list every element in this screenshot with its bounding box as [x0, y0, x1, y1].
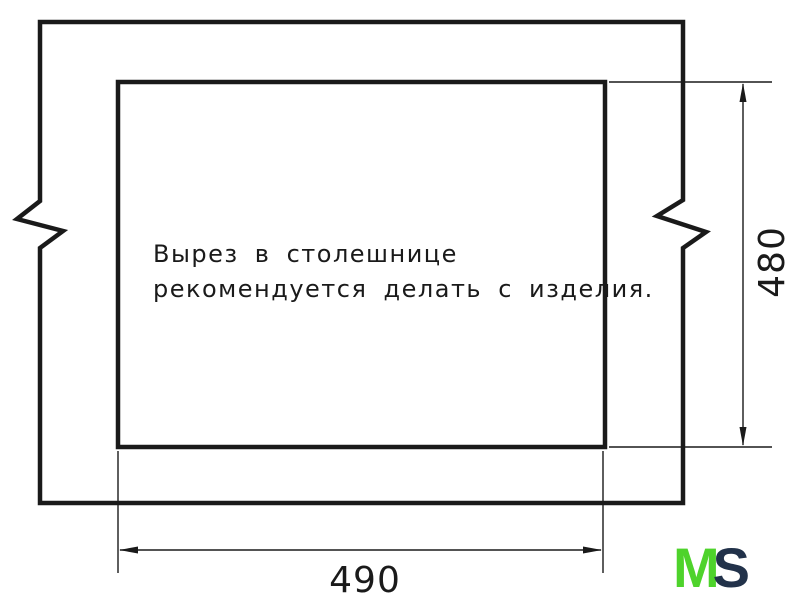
note-line-2: рекомендуется делать с изделия.	[153, 275, 654, 303]
height-arrow-bottom-icon	[740, 427, 747, 446]
drawing-canvas: Вырез в столешнице рекомендуется делать …	[0, 0, 805, 611]
height-dimension-label: 480	[752, 226, 793, 298]
ms-logo: MS	[673, 540, 750, 596]
note-line-1: Вырез в столешнице	[153, 240, 458, 268]
height-arrow-top-icon	[740, 83, 747, 102]
technical-drawing: Вырез в столешнице рекомендуется делать …	[0, 0, 805, 611]
ms-logo-letter-s: S	[713, 536, 750, 599]
width-dimension-label: 490	[329, 560, 401, 601]
width-arrow-left-icon	[119, 547, 138, 554]
dimension-arrowheads	[119, 83, 747, 554]
width-arrow-right-icon	[583, 547, 602, 554]
